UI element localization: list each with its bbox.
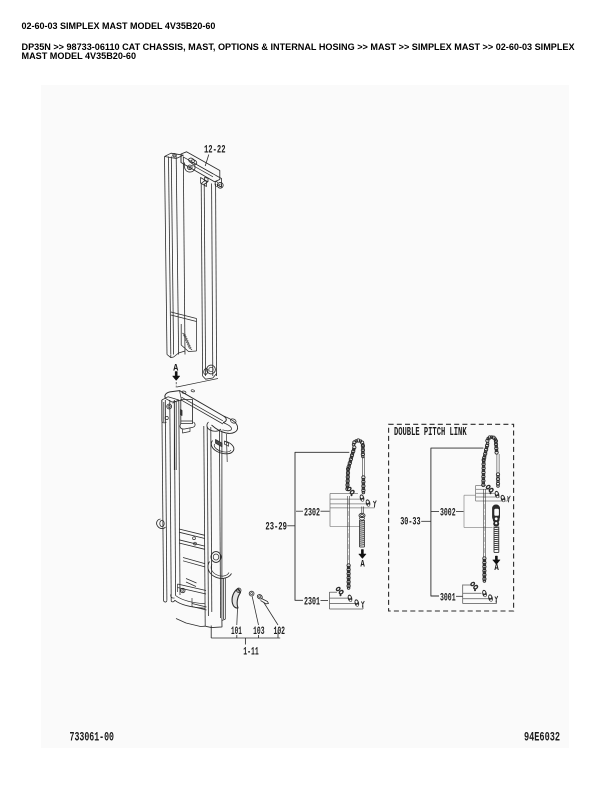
svg-text:1-11: 1-11 (243, 646, 259, 658)
svg-text:733061-00: 733061-00 (70, 730, 115, 745)
svg-text:A: A (360, 559, 364, 570)
svg-text:30-33: 30-33 (400, 517, 421, 529)
svg-text:102: 102 (274, 626, 286, 638)
svg-text:2302: 2302 (304, 508, 320, 520)
svg-text:A: A (494, 563, 498, 574)
svg-text:12-22: 12-22 (204, 145, 226, 157)
svg-text:23-29: 23-29 (265, 521, 287, 533)
svg-text:3002: 3002 (440, 507, 456, 519)
svg-text:3001: 3001 (440, 592, 456, 604)
svg-text:DOUBLE PITCH LINK: DOUBLE PITCH LINK (394, 425, 467, 439)
svg-text:94E6032: 94E6032 (524, 730, 560, 745)
svg-text:2301: 2301 (304, 596, 320, 608)
